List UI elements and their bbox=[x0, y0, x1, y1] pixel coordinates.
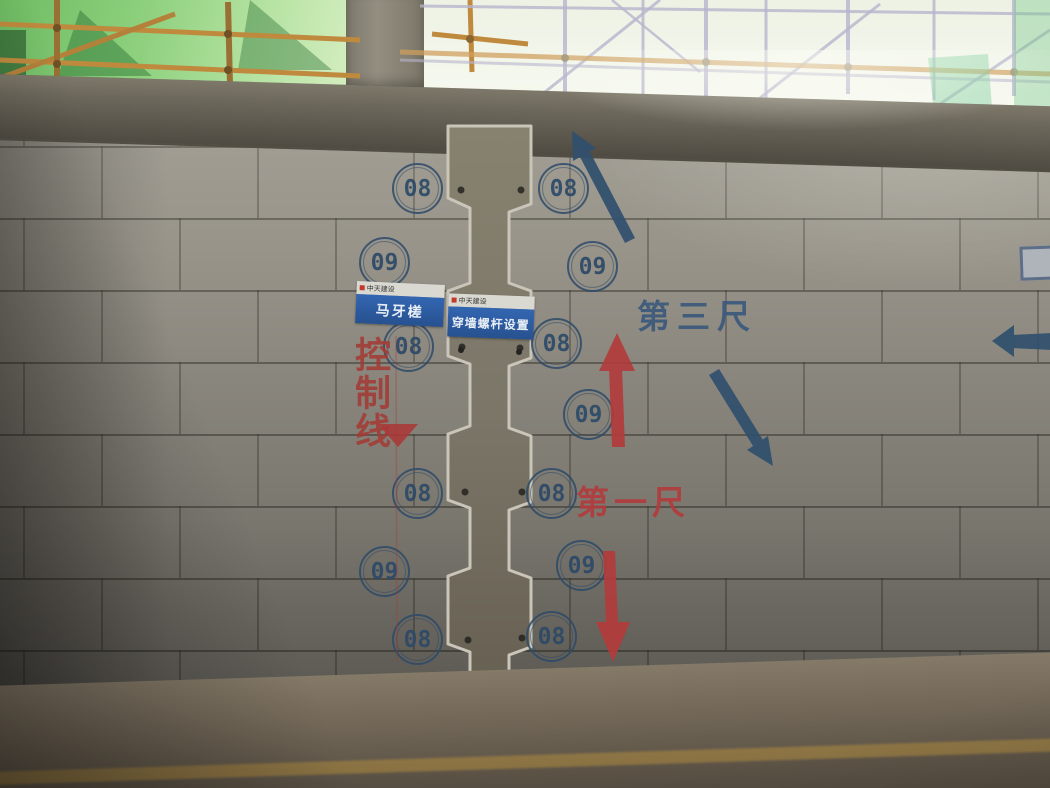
red-up-arrow bbox=[599, 333, 635, 447]
sign-screw bbox=[516, 349, 522, 355]
blue-arrow-left bbox=[992, 325, 1050, 357]
red-down-arrow bbox=[596, 551, 630, 662]
blue-arrow-up-left bbox=[572, 131, 635, 243]
yellow-floor-line bbox=[0, 738, 1050, 785]
blue-arrow-down-right bbox=[709, 369, 773, 466]
red-plumb-line bbox=[396, 336, 397, 662]
construction-site-photo: 08 09 08 08 09 08 08 09 08 09 08 09 08 中… bbox=[0, 0, 1050, 788]
sign-screw bbox=[458, 347, 464, 353]
red-triangle-marker bbox=[378, 424, 418, 447]
